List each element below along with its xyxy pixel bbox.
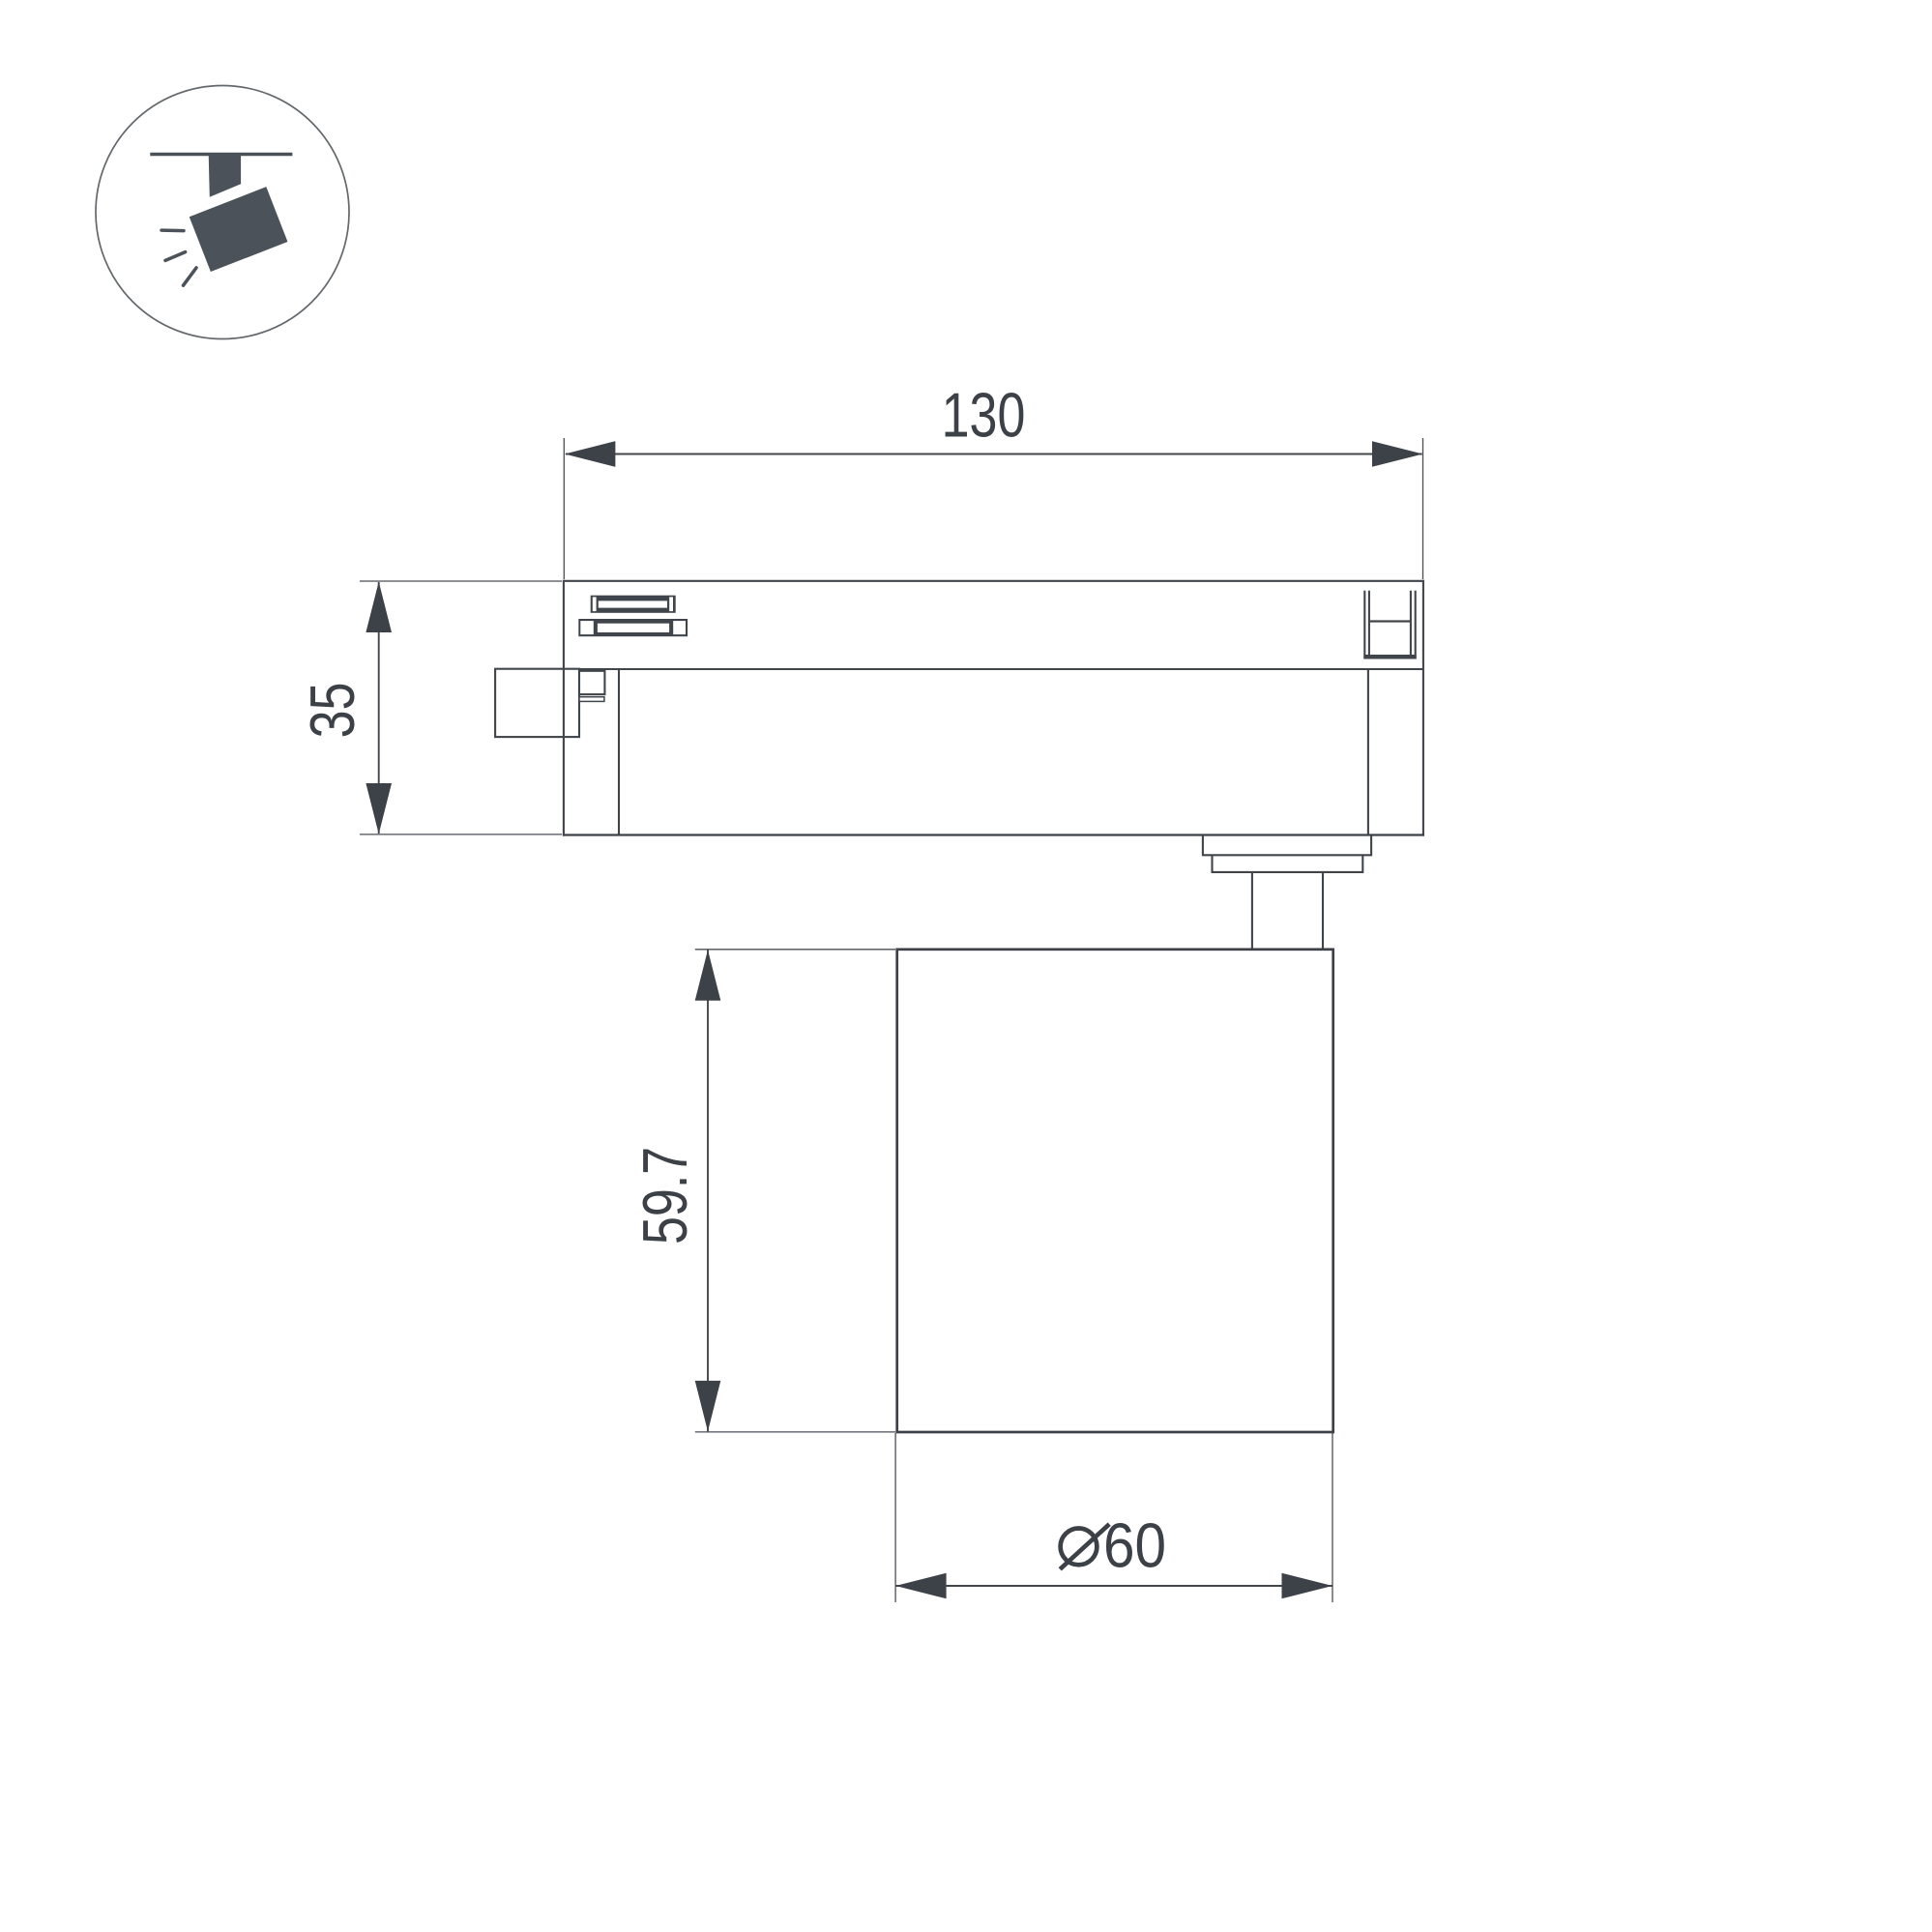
svg-text:130: 130 [942, 381, 1026, 451]
svg-text:59.7: 59.7 [631, 1147, 701, 1244]
svg-text:60: 60 [1103, 1511, 1166, 1582]
svg-text:35: 35 [298, 683, 367, 739]
